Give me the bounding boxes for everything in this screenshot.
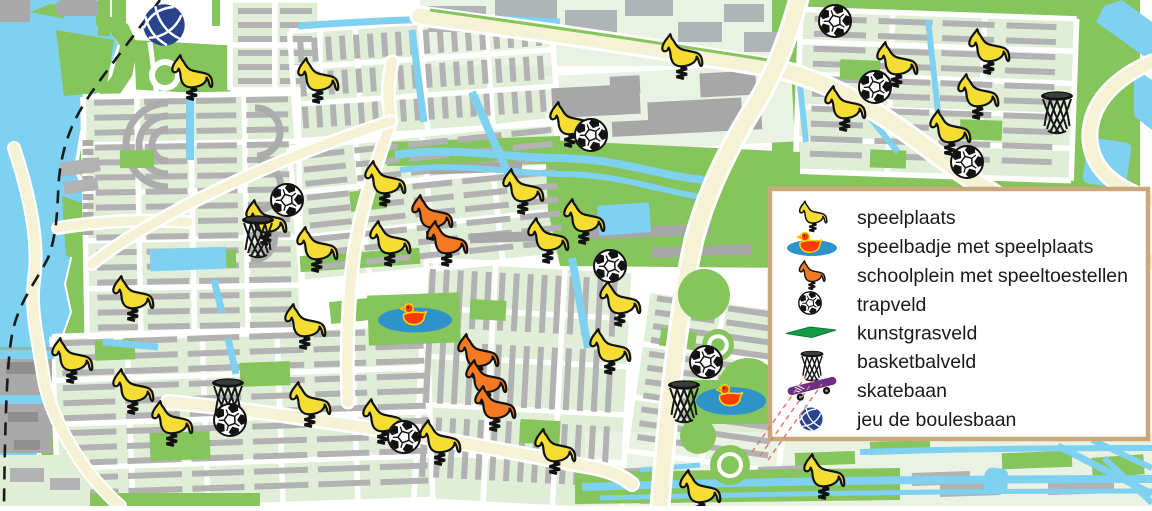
svg-text:schoolplein met speeltoestelle: schoolplein met speeltoestellen [857, 265, 1128, 287]
svg-text:jeu de boulesbaan: jeu de boulesbaan [856, 409, 1016, 431]
svg-text:speelbadje met speelplaats: speelbadje met speelplaats [857, 236, 1094, 258]
svg-text:speelplaats: speelplaats [857, 207, 956, 229]
svg-text:kunstgrasveld: kunstgrasveld [857, 323, 977, 345]
svg-text:skatebaan: skatebaan [857, 380, 947, 402]
svg-text:basketbalveld: basketbalveld [857, 351, 976, 373]
svg-text:trapveld: trapveld [857, 294, 926, 316]
